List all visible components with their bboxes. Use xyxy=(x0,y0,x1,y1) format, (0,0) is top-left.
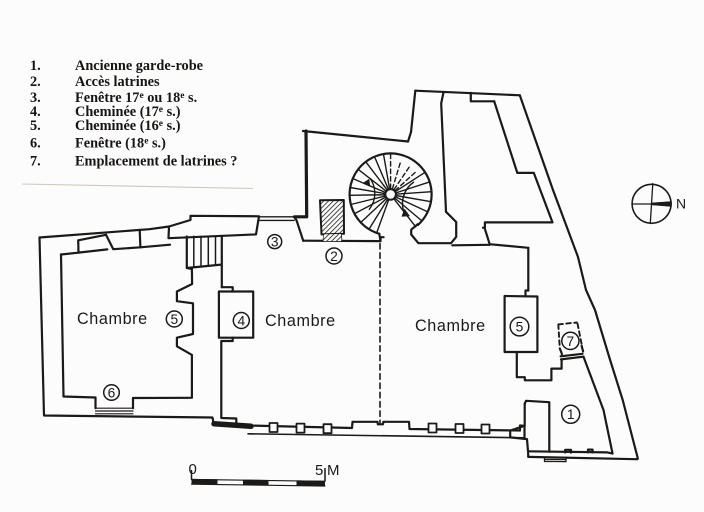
svg-text:3: 3 xyxy=(271,234,279,249)
svg-text:5: 5 xyxy=(315,462,323,479)
svg-text:6: 6 xyxy=(108,385,116,400)
svg-text:7.: 7. xyxy=(30,154,41,170)
svg-text:Emplacement de latrines ?: Emplacement de latrines ? xyxy=(75,154,237,170)
svg-text:Chambre: Chambre xyxy=(265,312,336,330)
svg-text:Ancienne garde-robe: Ancienne garde-robe xyxy=(75,58,203,74)
svg-text:1.: 1. xyxy=(30,58,41,74)
svg-text:1: 1 xyxy=(567,407,575,422)
svg-text:5: 5 xyxy=(170,312,178,327)
svg-text:Fenêtre (18e s.): Fenêtre (18e s.) xyxy=(75,136,166,152)
svg-text:Cheminée (16e s.): Cheminée (16e s.) xyxy=(75,118,181,134)
svg-text:Accès latrines: Accès latrines xyxy=(75,74,160,90)
svg-text:N: N xyxy=(676,196,686,212)
svg-text:5: 5 xyxy=(516,320,524,335)
svg-text:2: 2 xyxy=(330,249,338,264)
svg-text:Chambre: Chambre xyxy=(77,310,148,328)
svg-text:4: 4 xyxy=(237,313,245,328)
svg-text:7: 7 xyxy=(566,334,574,349)
svg-text:6.: 6. xyxy=(30,136,41,152)
svg-text:0: 0 xyxy=(189,461,197,478)
svg-text:5.: 5. xyxy=(30,118,41,134)
svg-text:Chambre: Chambre xyxy=(415,317,486,335)
svg-text:M: M xyxy=(327,462,340,479)
svg-text:2.: 2. xyxy=(30,74,41,90)
